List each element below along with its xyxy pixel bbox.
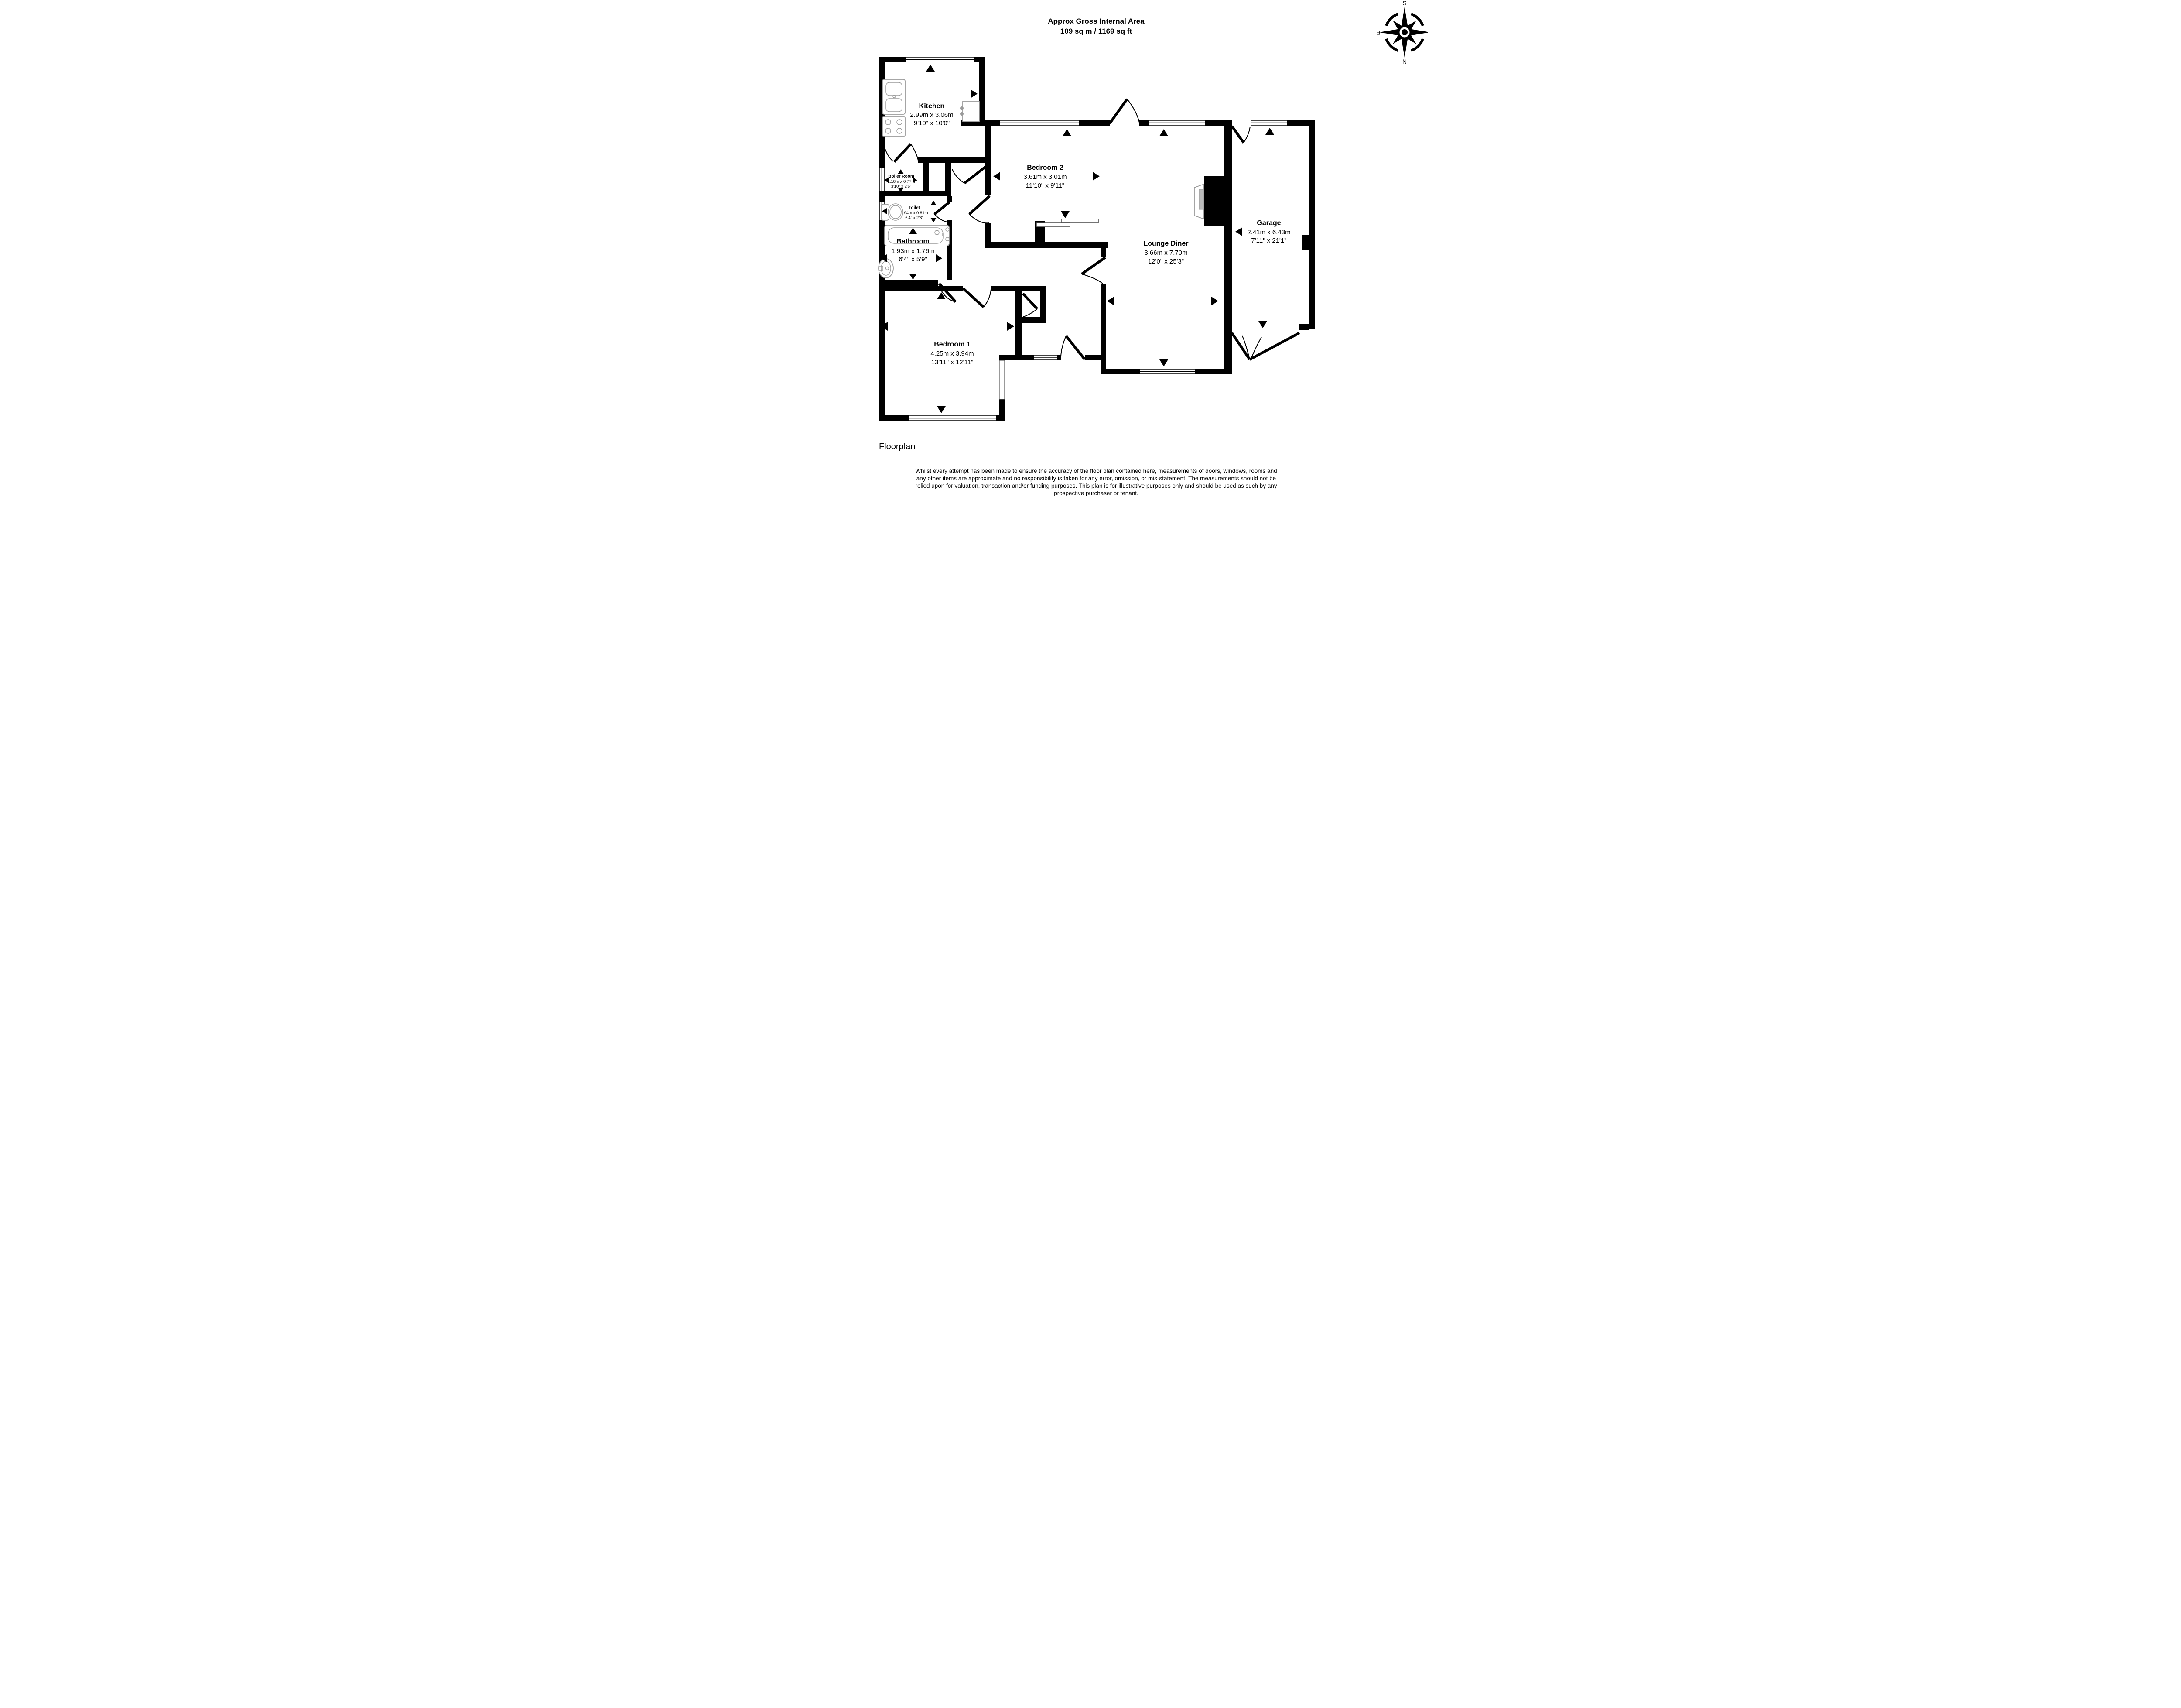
arrow-right-icon — [1211, 297, 1218, 305]
arrow-up-icon — [898, 169, 904, 174]
arrow-right-icon — [936, 254, 942, 262]
kitchen-counter-icon — [960, 102, 979, 122]
disclaimer-line-1: Whilst every attempt has been made to en… — [915, 468, 1277, 474]
room-label-toilet: Toilet — [909, 205, 920, 210]
room-label-bedroom2: Bedroom 2 — [1027, 164, 1063, 171]
arrow-up-icon — [1159, 129, 1168, 136]
arrow-up-icon — [1063, 129, 1071, 136]
sink-unit-icon — [882, 79, 905, 114]
page-title: Approx Gross Internal Area — [1048, 17, 1145, 25]
page-subtitle: 109 sq m / 1169 sq ft — [1060, 27, 1132, 35]
room-label-boiler-room: Boiler Room — [888, 174, 914, 179]
arrow-up-icon — [926, 65, 935, 72]
arrow-up-icon — [937, 292, 946, 299]
sliding-wardrobe-doors-icon — [1036, 219, 1098, 227]
arrow-down-icon — [1061, 211, 1070, 218]
arrow-left-icon — [993, 172, 1000, 181]
disclaimer-line-2: any other items are approximate and no r… — [916, 475, 1275, 482]
compass-north-label: N — [1402, 58, 1406, 65]
room-label-garage: Garage — [1257, 219, 1281, 227]
room-dim-bedroom2-metric: 3.61m x 3.01m — [1023, 173, 1067, 181]
arrow-up-icon — [930, 201, 937, 205]
room-dim-toilet-imperial: 6'4" x 2'8" — [905, 216, 923, 220]
room-dim-lounge-metric: 3.66m x 7.70m — [1144, 249, 1187, 257]
room-dim-kitchen-imperial: 9'10" x 10'0" — [913, 120, 949, 127]
room-label-kitchen: Kitchen — [919, 103, 944, 110]
arrow-right-icon — [1007, 322, 1014, 331]
room-dim-bathroom-metric: 1.93m x 1.76m — [891, 247, 934, 255]
room-dim-boiler-imperial: 3'10" x 2'6" — [891, 184, 911, 189]
floorplan-caption: Floorplan — [879, 442, 915, 452]
arrow-down-icon — [1159, 359, 1168, 366]
arrow-up-icon — [1265, 128, 1274, 135]
room-dim-kitchen-metric: 2.99m x 3.06m — [910, 111, 953, 119]
arrow-left-icon — [1107, 297, 1114, 305]
room-dim-bedroom1-metric: 4.25m x 3.94m — [930, 350, 974, 357]
room-label-lounge-diner: Lounge Diner — [1143, 240, 1188, 247]
room-label-bedroom1: Bedroom 1 — [934, 341, 971, 348]
room-dim-garage-imperial: 7'11" x 21'1" — [1251, 237, 1286, 244]
arrow-down-icon — [1258, 321, 1267, 328]
room-dim-garage-metric: 2.41m x 6.43m — [1247, 229, 1290, 236]
floorplan-page: Approx Gross Internal Area 109 sq m / 11… — [754, 0, 1428, 500]
floorplan-svg: Approx Gross Internal Area 109 sq m / 11… — [754, 0, 1428, 500]
arrow-left-icon — [1235, 227, 1242, 236]
fireplace-icon — [1194, 184, 1204, 219]
arrow-right-icon — [971, 89, 978, 98]
hob-icon — [882, 117, 905, 136]
room-dim-bathroom-imperial: 6'4" x 5'9" — [899, 256, 927, 263]
compass-south-label: S — [1402, 0, 1406, 7]
arrow-down-icon — [930, 218, 937, 222]
compass-rose-icon: S N W E — [1376, 0, 1428, 65]
compass-east-label: E — [1376, 29, 1380, 36]
room-dim-boiler-metric: 1.18m x 0.77m — [887, 179, 915, 184]
disclaimer-line-3: relied upon for valuation, transaction a… — [915, 483, 1277, 489]
arrow-down-icon — [909, 274, 917, 280]
disclaimer-line-4: prospective purchaser or tenant. — [1054, 490, 1138, 496]
disclaimer: Whilst every attempt has been made to en… — [915, 468, 1277, 496]
arrow-right-icon — [1093, 172, 1100, 181]
room-dim-bedroom2-imperial: 11'10" x 9'11" — [1026, 182, 1064, 189]
room-dim-toilet-metric: 1.94m x 0.81m — [900, 211, 928, 216]
room-dim-lounge-imperial: 12'0" x 25'3" — [1148, 258, 1183, 265]
room-dim-bedroom1-imperial: 13'11" x 12'11" — [931, 359, 973, 366]
room-label-bathroom: Bathroom — [896, 238, 930, 245]
arrow-down-icon — [937, 406, 946, 413]
